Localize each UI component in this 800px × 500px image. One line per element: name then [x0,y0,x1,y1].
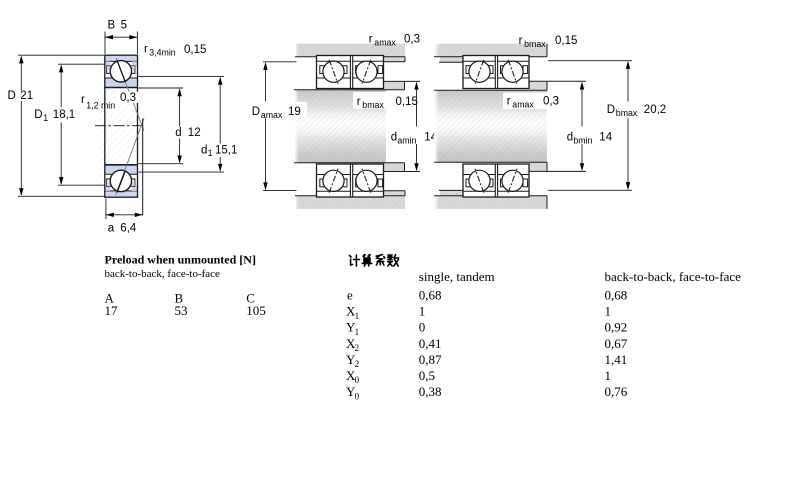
svg-text:d: d [391,132,397,144]
svg-text:Preload when unmounted [N]: Preload when unmounted [N] [105,253,256,267]
svg-text:r: r [369,34,373,46]
svg-text:amin: amin [397,136,416,146]
svg-text:amax: amax [512,100,534,110]
svg-text:0,3: 0,3 [543,96,559,108]
svg-text:bmax: bmax [362,100,384,110]
svg-text:1,41: 1,41 [605,352,628,367]
svg-text:D: D [252,106,260,118]
svg-text:single, tandem: single, tandem [419,269,495,284]
svg-text:r: r [519,35,523,47]
svg-text:19: 19 [288,106,301,118]
svg-text:r: r [81,94,85,106]
svg-text:0,41: 0,41 [419,336,442,351]
svg-text:1: 1 [43,113,48,123]
svg-text:0,15: 0,15 [555,35,577,47]
svg-text:a: a [108,223,115,235]
svg-text:r: r [507,96,511,108]
svg-text:0,15: 0,15 [184,44,206,56]
svg-text:1: 1 [605,368,612,383]
svg-text:back-to-back, face-to-face: back-to-back, face-to-face [605,269,742,284]
svg-text:0,68: 0,68 [605,288,628,303]
svg-text:0: 0 [419,320,426,335]
svg-text:53: 53 [175,303,188,318]
svg-text:back-to-back, face-to-face: back-to-back, face-to-face [105,268,221,280]
svg-text:D: D [607,104,615,116]
svg-text:B: B [108,20,116,32]
svg-text:12: 12 [188,127,201,139]
svg-text:0: 0 [355,391,360,401]
svg-text:r: r [357,96,361,108]
svg-text:18,1: 18,1 [53,109,75,121]
svg-text:bmax: bmax [616,108,638,118]
svg-text:d: d [567,132,573,144]
svg-text:1,2 min: 1,2 min [86,101,115,111]
svg-text:bmin: bmin [573,136,592,146]
svg-text:0,87: 0,87 [419,352,442,367]
svg-text:1: 1 [208,148,213,158]
svg-text:105: 105 [246,303,265,318]
svg-text:0,67: 0,67 [605,336,628,351]
svg-text:17: 17 [105,303,119,318]
svg-text:0,76: 0,76 [605,384,628,399]
svg-text:d: d [175,127,181,139]
svg-text:0,38: 0,38 [419,384,442,399]
svg-text:15,1: 15,1 [215,144,237,156]
svg-text:1: 1 [605,304,612,319]
svg-text:amax: amax [374,38,396,48]
svg-text:20,2: 20,2 [644,104,666,116]
svg-text:D: D [8,90,16,102]
svg-text:0,92: 0,92 [605,320,628,335]
svg-text:3,4min: 3,4min [149,48,176,58]
svg-text:d: d [201,144,207,156]
svg-text:1: 1 [419,304,426,319]
svg-text:6,4: 6,4 [120,223,137,235]
svg-text:14: 14 [599,132,612,144]
svg-text:e: e [347,288,353,303]
svg-text:bmax: bmax [524,39,546,49]
svg-text:21: 21 [20,90,33,102]
svg-text:0,3: 0,3 [120,92,136,104]
svg-text:0,15: 0,15 [396,96,418,108]
svg-text:r: r [144,44,148,56]
svg-text:0,5: 0,5 [419,368,435,383]
svg-text:0,3: 0,3 [404,34,420,46]
svg-text:amax: amax [261,110,283,120]
svg-text:0,68: 0,68 [419,288,442,303]
svg-text:5: 5 [121,20,127,32]
svg-text:D: D [34,109,42,121]
